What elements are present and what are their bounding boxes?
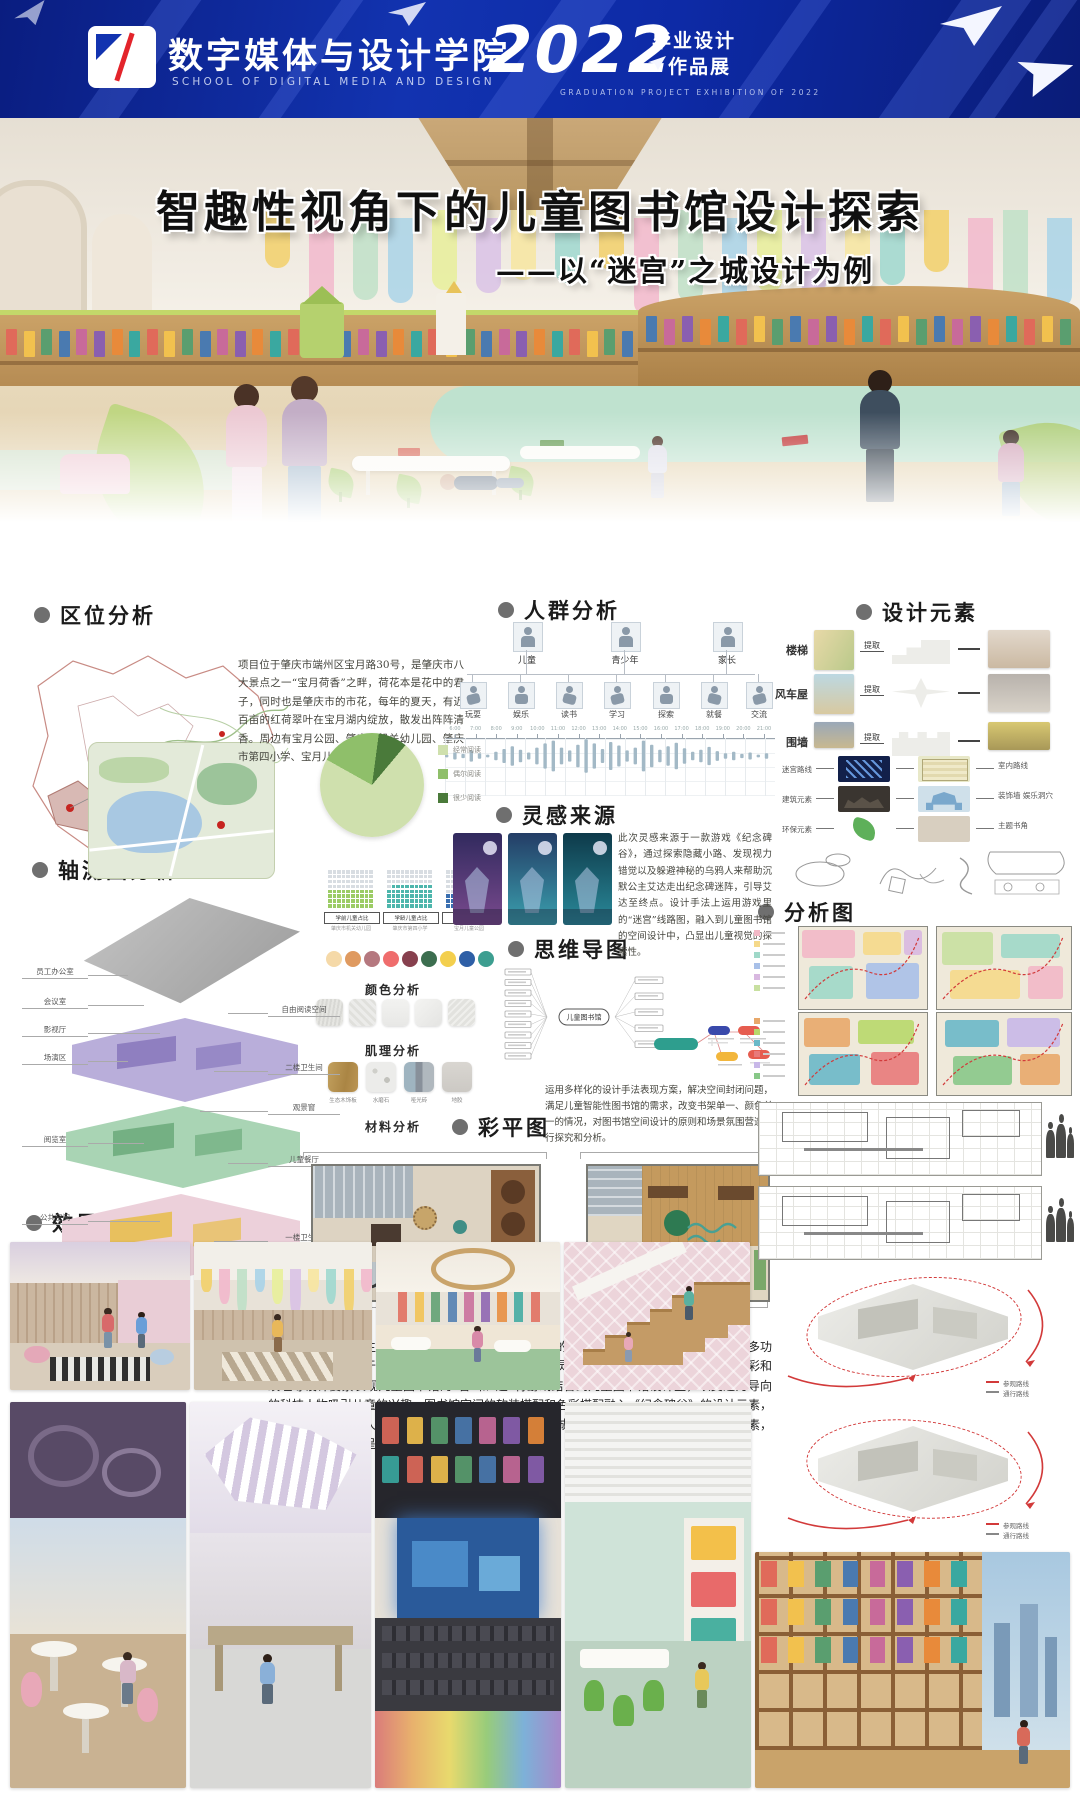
book-spine [24,331,35,357]
zoning-legend-line [763,965,785,967]
mapping-to-label: 主题书角 [998,820,1056,831]
person-body [272,1320,283,1337]
render-green-room [565,1402,751,1788]
zoning-legend-line [763,1042,785,1044]
pie-legend-item: 偶尔阅读 [438,768,508,780]
element-result-photo [988,722,1050,750]
book-spine [988,319,999,345]
person-body [695,1669,709,1690]
people-group-label: 家长 [707,653,747,666]
render-cafe [10,1402,186,1788]
plan-note-text: 运用多样化的设计手法表现方案，解决空间封闭问题，满足儿童智能性图书馆的需求，改变… [545,1083,773,1161]
waffle-cell [365,904,369,908]
zoning-plan-1 [798,926,928,1010]
material-swatch [366,1062,396,1092]
waffle-cell [424,894,428,898]
park-shape [197,763,257,805]
waffle-cell [333,870,337,874]
waffle-cell [401,870,405,874]
book-spine [736,319,747,345]
book-spine [164,331,175,357]
element-photo [814,630,854,670]
book-spine [358,329,369,355]
zoning-legend-swatch [754,1018,760,1024]
activity-item: 读书 [555,682,583,724]
waffle-cell [387,885,391,889]
waffle-cell [428,885,432,889]
book-spine [59,331,70,357]
waffle-cell [401,875,405,879]
legend-label: 很少阅读 [453,793,481,803]
activity-icon [508,682,535,709]
bookshelf-band [638,286,1080,386]
activity-item: 娱乐 [507,682,535,724]
line [816,768,834,769]
zoning-legend-line [763,987,785,989]
person-silhouette [1067,1218,1074,1242]
waffle-cell [396,899,400,903]
axon-callout-line [88,1221,160,1222]
bullet-dot-icon [34,607,50,623]
element-photo [814,722,854,748]
connector [616,674,617,682]
mapping-image [838,756,890,782]
axon-label-left: 公共空间 [22,1212,88,1225]
element-result-photo [988,630,1050,668]
waffle-cell [410,904,414,908]
waffle-cell [369,885,373,889]
book-spine [790,316,801,342]
waffle-cell [387,870,391,874]
person-figure [684,1286,694,1320]
palette-swatch [478,951,494,967]
axon-callout-line [88,1061,128,1062]
waffle-cell [351,894,355,898]
waffle-cell [392,870,396,874]
timeline-tick-label: 18:00 [692,726,712,732]
waffle-cell [392,904,396,908]
timeline-tick-label: 7:00 [466,726,486,732]
waffle-cell [446,875,450,879]
waffle-cell [356,904,360,908]
book-spine [393,329,404,355]
activity-icon [701,682,728,709]
palette-swatch [459,951,475,967]
person-body [102,1314,114,1332]
extract-label: 提取 [860,684,884,696]
zoning-legend-line [763,932,785,934]
render-row-2 [0,1402,1080,1792]
waffle-cell [410,885,414,889]
exhibition-year: 2022 [488,14,674,88]
waffle-cell [424,870,428,874]
waffle-cell [360,870,364,874]
render-ceiling-room [190,1402,371,1788]
waffle-cell [419,880,423,884]
activity-label: 玩耍 [453,709,493,720]
pie-chart [320,733,424,837]
waffle-cell [424,880,428,884]
timeline-tick-label: 15:00 [630,726,650,732]
waffle-cell [446,870,450,874]
waffle-cell [360,899,364,903]
people-icons [1046,1120,1074,1160]
person-silhouette [1056,1208,1066,1242]
line [816,798,834,799]
waffle-cell [396,894,400,898]
line [896,768,914,769]
axon-label-left: 场演区 [22,1052,88,1065]
arrow-line [958,692,980,694]
mapping-to-label: 室内路线 [998,760,1056,771]
activity-icon [460,682,487,709]
book-spine [1042,316,1053,342]
zoning-legend-swatch [754,974,760,980]
zoning-legend-line [763,1064,785,1066]
book-spine [112,329,123,355]
palette-swatch [402,951,418,967]
waffle-cell [446,880,450,884]
activity-item: 就餐 [700,682,728,724]
axon-label-left: 员工办公室 [22,966,88,979]
person-silhouette [1056,1124,1066,1158]
waffle-cell [328,875,332,879]
waffle-cell [415,890,419,894]
book-spine [1006,316,1017,342]
book-spine [664,319,675,345]
waffle-cell [360,880,364,884]
activity-item: 探索 [652,682,680,724]
waffle-cell [392,885,396,889]
waffle-cell [396,880,400,884]
line [976,798,994,799]
zoning-legend-line [763,1075,785,1077]
legend-swatch [438,745,448,755]
waffle-cell [446,890,450,894]
waffle-cell [346,870,350,874]
activity-item: 学习 [603,682,631,724]
waffle-cell [419,885,423,889]
axon-callout-line [228,1163,268,1164]
legend-label: 偶尔阅读 [453,769,481,779]
waffle-cell [392,899,396,903]
zoning-plan-4 [936,1012,1072,1096]
texture-swatch [448,999,475,1026]
palette-swatch [421,951,437,967]
waffle-cell [365,899,369,903]
inspiration-image [453,833,502,925]
zoning-plan-3 [798,1012,928,1096]
waffle-cell [369,870,373,874]
axon-callout-line [214,1071,268,1072]
waffle-cell [401,894,405,898]
waffle-cell [428,870,432,874]
book-spine [1024,319,1035,345]
palette-swatch [440,951,456,967]
waffle-cell [365,894,369,898]
render-color-room [194,1242,372,1390]
waffle-cell [410,899,414,903]
people-group-item: 儿童 [507,622,547,672]
waffle-cell [342,875,346,879]
waffle-cell [396,870,400,874]
book-spine [270,331,281,357]
activity-icon [604,682,631,709]
white-castle [436,293,466,355]
render-staircase [564,1242,750,1390]
waffle-cell [446,899,450,903]
axon-label-left: 影视厅 [22,1024,88,1037]
zoning-legend-swatch [754,941,760,947]
book-spine [288,329,299,355]
element-photo [814,674,854,714]
school-logo [88,26,156,88]
texture-swatch [382,999,409,1026]
waffle-cell [428,894,432,898]
book-spine [200,331,211,357]
zoning-plan-2 [936,926,1072,1010]
waffle-cell [392,894,396,898]
timeline-tick-label: 6:00 [445,726,465,732]
waffle-tag: 学龄儿童占比 [383,912,439,924]
timeline-tick-label: 14:00 [610,726,630,732]
line [896,828,914,829]
book-spine [6,329,17,355]
arrow-line [958,740,980,742]
bullet-dot-icon [498,602,514,618]
color-palette-row [326,951,496,971]
section-header-people: 人群分析 [498,595,620,625]
waffle-cell [360,890,364,894]
waffle-cell [428,899,432,903]
texture-swatch [349,999,376,1026]
waffle-cell [410,880,414,884]
person-body [624,1337,633,1351]
zoning-legend-swatch [754,1073,760,1079]
person-figure [624,1332,633,1362]
zoning-legend-line [763,954,785,956]
element-sketch [892,678,950,708]
material-label: 水磨石 [360,1096,402,1104]
zoning-legend-swatch [754,985,760,991]
person-silhouette [1046,1130,1055,1158]
waffle-cell [360,894,364,898]
inspiration-image [563,833,612,925]
render-auditorium [375,1402,561,1788]
book-spine [499,329,510,355]
axon-floor-upper [72,1018,298,1102]
mapping-image [918,816,970,842]
book-spine [534,329,545,355]
book-spine [826,316,837,342]
waffle-cell [337,870,341,874]
waffle-cell [396,904,400,908]
paper-plane-icon [12,0,51,30]
element-sketch [892,726,950,756]
waffle-cell [356,880,360,884]
waffle-cell [360,904,364,908]
book-spine [235,331,246,357]
book-spine [808,319,819,345]
person-body [684,1291,694,1306]
waffle-cell [387,894,391,898]
waffle-cell [405,875,409,879]
cad-plan-1 [758,1102,1042,1176]
book-spine [182,329,193,355]
axon-label-right: 自由阅读空间 [268,1004,340,1017]
person-legs [697,1690,707,1708]
mapping-image [838,786,890,812]
legend-swatch [438,769,448,779]
book-spine [682,316,693,342]
waffle-cell [415,885,419,889]
waffle-cell [424,875,428,879]
waffle-cell [405,870,409,874]
axon-callout-line [88,1143,144,1144]
zoning-legend-swatch [754,930,760,936]
person-figure [695,1662,709,1708]
timeline-tick-label: 20:00 [733,726,753,732]
zoning-legend-line [763,943,785,945]
waffle-cell [351,885,355,889]
axon-callout-line [88,975,128,976]
material-swatch-row: 生态木饰板水磨石哑光砖地胶 [328,1062,478,1108]
waffle-cell [365,870,369,874]
waffle-cell [428,880,432,884]
zoning-legend-line [763,1053,785,1055]
green-playhouse [300,286,344,358]
book-spine [147,329,158,355]
book-spine [934,316,945,342]
people-group-label: 儿童 [507,653,547,666]
waffle-note: 宝月儿童公园 [440,925,498,932]
waffle-cell [405,894,409,898]
waffle-cell [424,904,428,908]
waffle-cell [369,890,373,894]
material-label: 地胶 [436,1096,478,1104]
axon-floor-middle [66,1106,300,1188]
waffle-cell [446,894,450,898]
person-legs [685,1306,692,1320]
book-spine [94,331,105,357]
book-spine [604,329,615,355]
waffle-cell [356,894,360,898]
activity-icon [653,682,680,709]
connector [726,650,727,675]
mapping-image [838,816,890,842]
person-figure [260,1654,275,1704]
timeline-tick-label: 8:00 [486,726,506,732]
texture-swatch [415,999,442,1026]
person-figure [472,1326,483,1362]
waffle-cell [346,875,350,879]
people-group-label: 青少年 [605,653,645,666]
book-spine [970,316,981,342]
waffle-cell [401,880,405,884]
waffle-cell [428,875,432,879]
waffle-cell [446,885,450,889]
connector [665,674,666,682]
person-figure [102,1308,114,1348]
person-body [472,1331,483,1347]
timeline-tick-label: 17:00 [672,726,692,732]
design-elements-column: 楼梯提取风车屋提取围墙提取迷宫路线室内路线建筑元素装饰墙 娱乐洞穴环保元素主题书… [760,630,1075,900]
person-body [1017,1727,1030,1747]
waffle-cell [369,899,373,903]
book-spine [952,319,963,345]
person-figure [272,1314,283,1352]
waffle-cell [419,894,423,898]
book-spine [718,316,729,342]
waffle-cell [419,875,423,879]
school-name-en: SCHOOL OF DIGITAL MEDIA AND DESIGN [172,76,495,88]
book-spine [217,329,228,355]
timeline-tick-label: 13:00 [589,726,609,732]
axon-roof [70,898,300,1010]
waffle-cell [405,899,409,903]
zoning-legend-line [763,1020,785,1022]
palette-swatch [383,951,399,967]
person-body [136,1317,147,1333]
svg-text:儿童图书馆: 儿童图书馆 [567,1013,602,1022]
connector [568,674,569,682]
waffle-note: 肇庆市第四小学 [381,925,439,932]
book-spine [844,319,855,345]
banner-streak [719,0,832,118]
waffle-cell [415,870,419,874]
zoning-legend-swatch [754,963,760,969]
book-spine [552,331,563,357]
axon-label-right: 二楼卫生间 [268,1062,340,1075]
waffle-cell [333,875,337,879]
element-name: 围墙 [760,734,808,750]
axon-callout-line [200,1111,268,1112]
waffle-cell [351,880,355,884]
activity-label: 读书 [549,709,589,720]
waffle-cell [401,904,405,908]
connector [520,674,521,682]
banner: 数字媒体与设计学院 SCHOOL OF DIGITAL MEDIA AND DE… [0,0,1080,118]
waffle-cell [360,885,364,889]
book-spine [916,319,927,345]
render-bookwall [755,1552,1070,1788]
axon-label-left: 会议室 [22,996,88,1009]
book-spine [880,319,891,345]
wall-color-panel [1047,218,1072,307]
book-spine [411,331,422,357]
activity-label: 探索 [646,709,686,720]
waffle-cell [356,870,360,874]
render-row-1 [0,1242,1080,1392]
waffle-cell [410,890,414,894]
connector [713,674,714,682]
waffle-cell [410,870,414,874]
waffle-cell [405,885,409,889]
waffle-cell [365,880,369,884]
element-result-photo [988,674,1050,712]
people-icons [1046,1204,1074,1244]
extract-label: 提取 [860,640,884,652]
book-spine [376,331,387,357]
waffle-cell [392,880,396,884]
waffle-cell [419,890,423,894]
waffle-cell [410,894,414,898]
connector [758,674,759,682]
waffle-cell [415,880,419,884]
zoning-legend-swatch [754,1040,760,1046]
book-spine [646,316,657,342]
waffle-cell [369,875,373,879]
